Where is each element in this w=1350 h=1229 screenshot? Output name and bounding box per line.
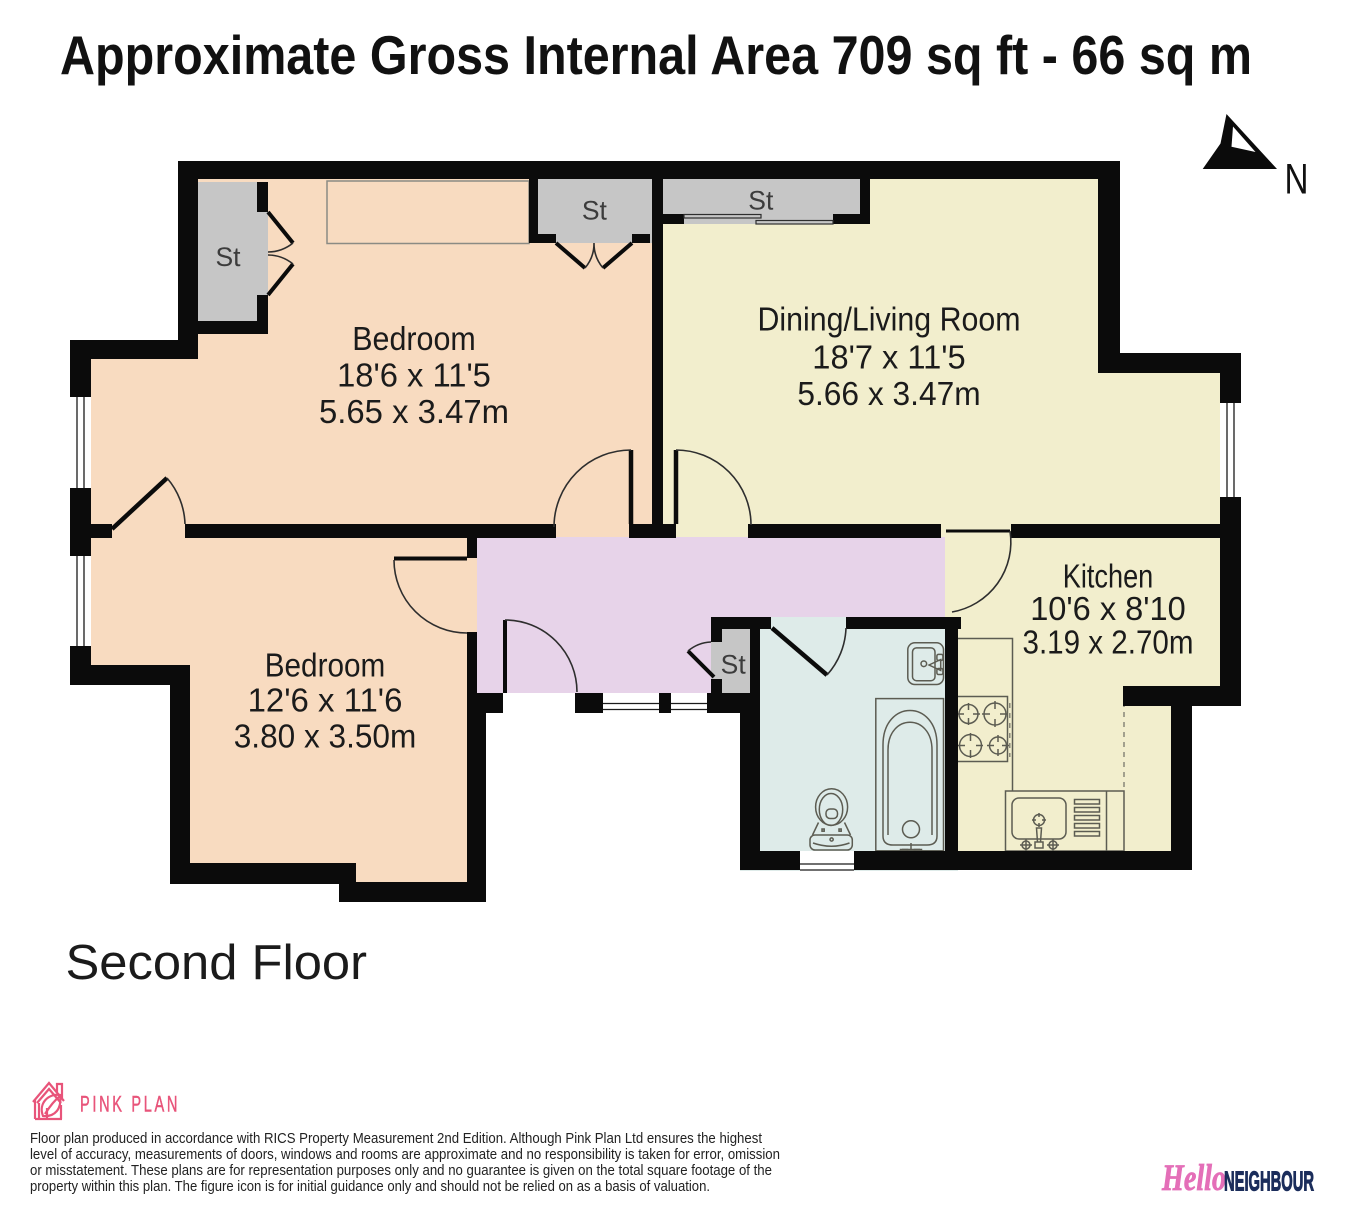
svg-text:5.66 x 3.47m: 5.66 x 3.47m [797, 376, 980, 413]
svg-text:3.80 x 3.50m: 3.80 x 3.50m [234, 719, 417, 756]
svg-text:10'6 x 8'10: 10'6 x 8'10 [1030, 591, 1186, 628]
svg-text:Bedroom: Bedroom [352, 321, 476, 358]
svg-text:St: St [721, 650, 747, 680]
svg-text:St: St [582, 196, 608, 226]
svg-text:St: St [748, 186, 774, 216]
svg-text:St: St [215, 242, 241, 272]
svg-text:18'6 x 11'5: 18'6 x 11'5 [337, 358, 491, 395]
svg-text:PINK PLAN: PINK PLAN [80, 1092, 180, 1117]
svg-text:Bedroom: Bedroom [265, 648, 386, 685]
svg-text:3.19 x 2.70m: 3.19 x 2.70m [1023, 625, 1194, 662]
svg-text:level of accuracy, measurement: level of accuracy, measurements of doors… [30, 1147, 780, 1163]
svg-text:NEIGHBOUR: NEIGHBOUR [1224, 1166, 1314, 1197]
svg-text:18'7 x 11'5: 18'7 x 11'5 [812, 339, 965, 376]
svg-text:N: N [1285, 155, 1309, 203]
svg-text:property within this plan. The: property within this plan. The figure ic… [30, 1179, 710, 1195]
svg-text:Hello: Hello [1161, 1158, 1226, 1199]
svg-text:or misstatement. These plans a: or misstatement. These plans are for rep… [30, 1163, 772, 1179]
svg-text:Second Floor: Second Floor [66, 936, 368, 990]
svg-text:Kitchen: Kitchen [1063, 558, 1154, 595]
svg-text:12'6 x 11'6: 12'6 x 11'6 [248, 683, 403, 720]
svg-text:Approximate Gross Internal Are: Approximate Gross Internal Area 709 sq f… [60, 24, 1252, 86]
svg-text:Floor plan produced in accorda: Floor plan produced in accordance with R… [30, 1131, 762, 1147]
svg-text:Dining/Living Room: Dining/Living Room [758, 302, 1021, 339]
svg-text:5.65 x 3.47m: 5.65 x 3.47m [319, 394, 509, 431]
